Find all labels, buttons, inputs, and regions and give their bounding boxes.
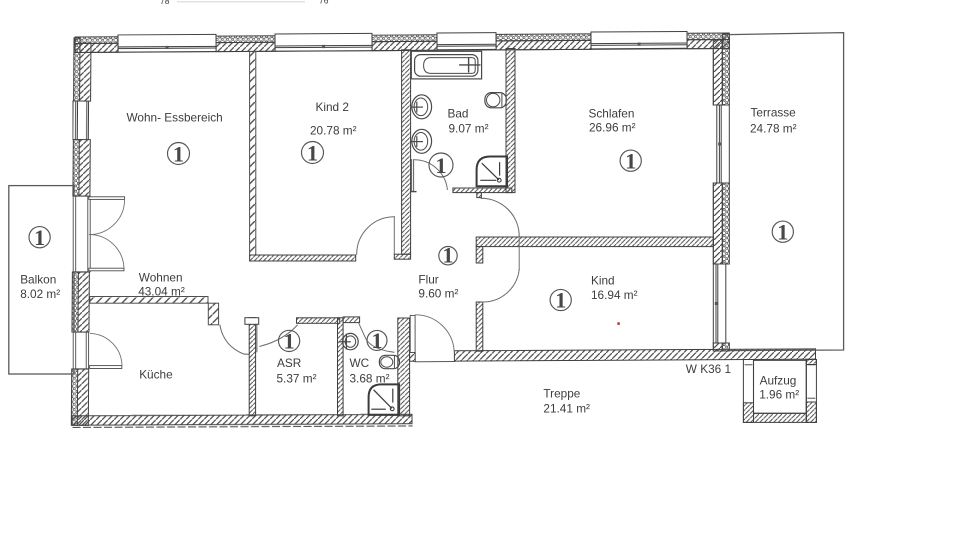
svg-text:Aufzug: Aufzug	[760, 373, 797, 387]
svg-text:1: 1	[34, 225, 45, 250]
svg-text:24.78 m²: 24.78 m²	[750, 121, 797, 135]
svg-text:1: 1	[777, 219, 788, 244]
svg-text:43.04 m²: 43.04 m²	[138, 285, 185, 299]
svg-text:78: 78	[160, 0, 170, 6]
svg-text:26.96 m²: 26.96 m²	[589, 120, 636, 134]
svg-text:1: 1	[173, 141, 184, 166]
svg-text:8.02 m²: 8.02 m²	[20, 287, 60, 301]
svg-text:16.94 m²: 16.94 m²	[591, 288, 638, 302]
svg-text:1: 1	[555, 288, 566, 313]
svg-text:1: 1	[442, 242, 453, 267]
svg-text:Schlafen: Schlafen	[589, 106, 635, 120]
svg-text:Kind 2: Kind 2	[316, 100, 349, 114]
svg-text:Flur: Flur	[418, 273, 438, 287]
svg-text:1: 1	[435, 153, 446, 178]
svg-text:9.60 m²: 9.60 m²	[418, 286, 458, 300]
svg-text:1: 1	[307, 140, 318, 165]
svg-text:1: 1	[283, 329, 294, 354]
svg-text:1: 1	[371, 328, 382, 353]
svg-text:Wohn- Essbereich: Wohn- Essbereich	[127, 110, 223, 124]
svg-text:1: 1	[625, 148, 636, 173]
svg-text:ASR: ASR	[277, 356, 301, 370]
svg-text:76: 76	[319, 0, 329, 6]
svg-text:Wohnen: Wohnen	[139, 270, 183, 284]
svg-text:Küche: Küche	[139, 367, 173, 381]
svg-text:3.68 m²: 3.68 m²	[350, 371, 390, 385]
svg-text:9.07 m²: 9.07 m²	[449, 121, 489, 135]
svg-text:Terrasse: Terrasse	[751, 106, 797, 120]
svg-text:20.78 m²: 20.78 m²	[310, 124, 357, 138]
svg-text:5.37 m²: 5.37 m²	[277, 371, 317, 385]
svg-text:21.41 m²: 21.41 m²	[543, 401, 590, 415]
svg-text:1.96 m²: 1.96 m²	[759, 388, 799, 402]
svg-text:WC: WC	[350, 356, 370, 370]
svg-text:Treppe: Treppe	[543, 387, 580, 401]
svg-text:Bad: Bad	[448, 106, 469, 120]
svg-text:W K36 1: W K36 1	[686, 362, 731, 376]
svg-text:Kind: Kind	[591, 274, 615, 288]
svg-text:Balkon: Balkon	[20, 273, 56, 287]
